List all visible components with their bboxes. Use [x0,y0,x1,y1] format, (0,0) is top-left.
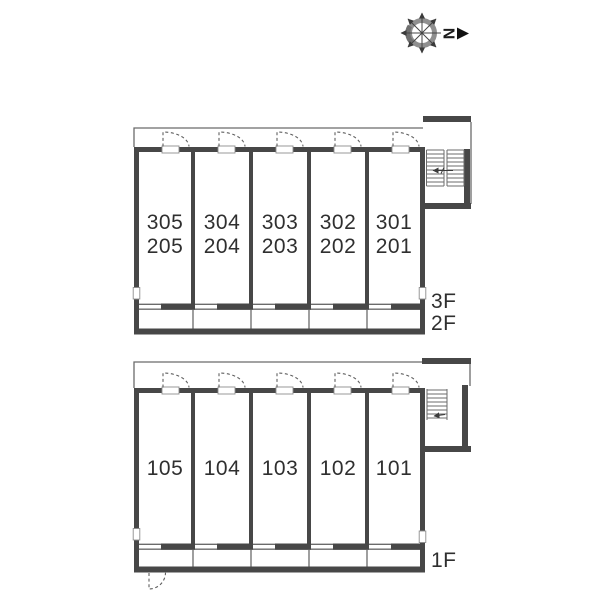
upper-left-wall [134,147,139,335]
unit-label: 105 [147,457,184,480]
unit-divider [249,388,253,548]
window-notch [419,288,426,300]
unit-divider [365,388,369,548]
unit-label: 103 [262,457,299,480]
floor-label-1f: 1F [431,549,457,572]
unit-label: 204 [204,235,241,258]
unit-divider [191,147,195,307]
floor-plan-page: N [0,0,600,600]
lower-corridor-line [134,362,470,388]
unit-label: 303 [262,211,299,234]
unit-label: 302 [320,211,357,234]
lower-window-band [139,544,425,550]
unit-label: 202 [320,235,357,258]
north-label: N [440,28,457,40]
stair-direction-arrow [434,415,445,417]
compass-rose-icon: N [401,13,469,53]
upper-balcony [134,310,425,335]
upper-floor-plan: 305 205 304 204 303 203 302 202 301 201 … [133,116,471,335]
lower-balcony [134,550,425,573]
unit-label: 301 [376,211,413,234]
unit-label: 305 [147,211,184,234]
upper-corridor-line [134,128,423,147]
floor-label-3f: 3F [431,290,457,313]
unit-divider [249,147,253,307]
unit-label: 104 [204,457,241,480]
unit-divider [191,388,195,548]
floor-label-2f: 2F [431,312,457,335]
unit-label: 101 [376,457,413,480]
upper-window-band [139,304,425,310]
svg-text:N: N [440,28,457,40]
unit-label: 304 [204,211,241,234]
unit-divider [307,147,311,307]
window-notch [133,529,140,541]
unit-label: 203 [262,235,299,258]
unit-label: 201 [376,235,413,258]
upper-staircase [423,116,471,209]
window-notch [133,288,140,300]
unit-label: 205 [147,235,184,258]
exterior-door-swing [149,573,166,589]
window-notch [419,531,426,543]
lower-left-wall [134,388,139,573]
unit-divider [307,388,311,548]
lower-floor-plan: 105 104 103 102 101 1F [133,358,471,589]
unit-label: 102 [320,457,357,480]
lower-staircase [422,358,471,452]
unit-divider [365,147,369,307]
north-arrow-icon [457,28,469,40]
floor-plan-drawing: N [0,0,600,600]
